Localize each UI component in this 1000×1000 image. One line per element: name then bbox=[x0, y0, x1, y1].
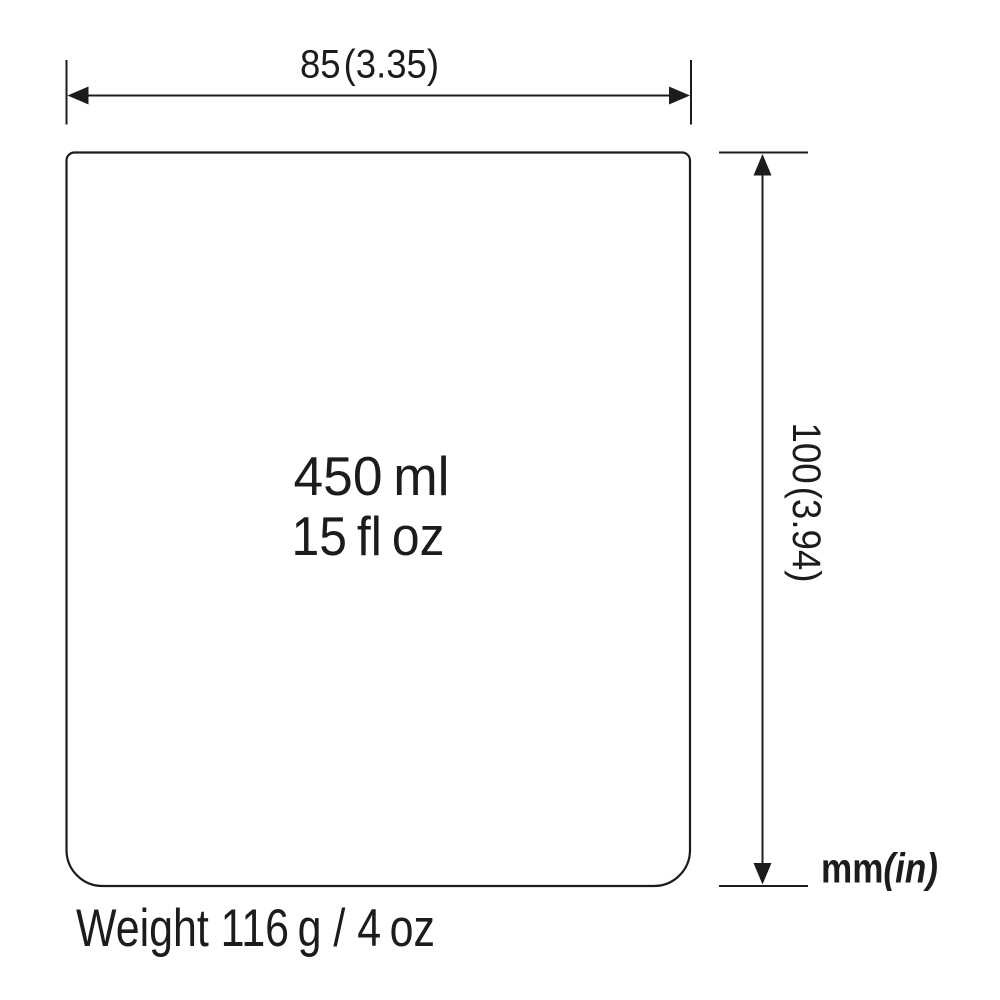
svg-text:85 (3.35): 85 (3.35) bbox=[300, 43, 439, 87]
svg-text:100 (3.94): 100 (3.94) bbox=[784, 423, 828, 583]
svg-text:450 ml: 450 ml bbox=[294, 445, 450, 507]
svg-text:Weight 116 g / 4 oz: Weight 116 g / 4 oz bbox=[76, 899, 435, 958]
svg-text:mm(in): mm(in) bbox=[821, 845, 938, 892]
svg-text:15 fl oz: 15 fl oz bbox=[292, 505, 445, 567]
